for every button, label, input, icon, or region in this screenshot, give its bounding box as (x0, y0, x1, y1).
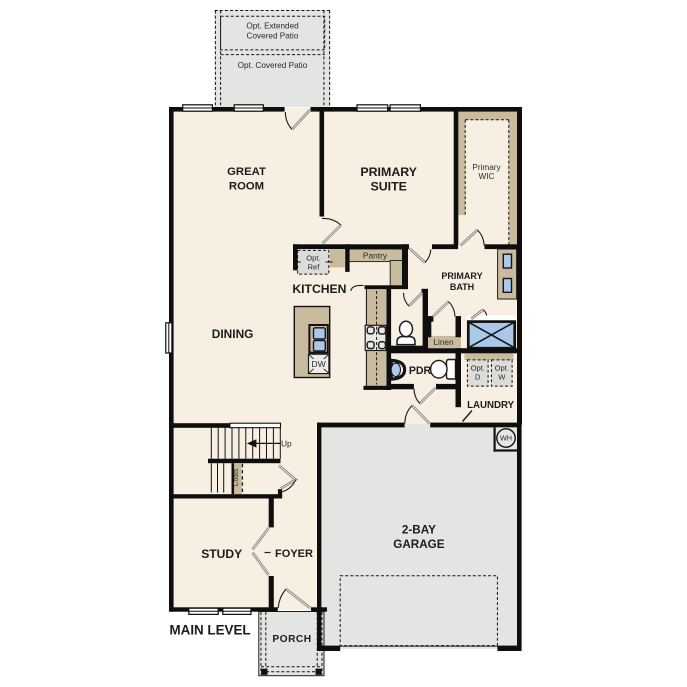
svg-text:GREAT: GREAT (227, 166, 266, 178)
svg-text:Opt.: Opt. (471, 363, 485, 372)
svg-text:Covered Patio: Covered Patio (247, 32, 299, 41)
svg-text:PRIMARY: PRIMARY (441, 271, 482, 281)
svg-text:PORCH: PORCH (272, 634, 311, 645)
svg-text:Coats: Coats (233, 468, 240, 487)
svg-text:DW: DW (311, 359, 326, 369)
svg-text:KITCHEN: KITCHEN (292, 282, 346, 296)
svg-text:SUITE: SUITE (370, 180, 407, 194)
svg-text:STUDY: STUDY (201, 547, 242, 561)
svg-text:Opt. Covered Patio: Opt. Covered Patio (238, 61, 308, 70)
svg-text:GARAGE: GARAGE (393, 538, 445, 551)
svg-text:LAUNDRY: LAUNDRY (467, 400, 515, 411)
svg-text:BATH: BATH (450, 282, 474, 292)
svg-text:Opt. Extended: Opt. Extended (246, 22, 299, 31)
svg-text:WIC: WIC (479, 172, 495, 181)
svg-text:WH: WH (500, 434, 512, 443)
svg-text:2-BAY: 2-BAY (402, 524, 436, 537)
svg-text:Linen: Linen (433, 338, 453, 347)
svg-text:D: D (475, 373, 481, 382)
svg-text:Opt.: Opt. (495, 363, 509, 372)
svg-text:DINING: DINING (212, 327, 254, 341)
svg-text:PRIMARY: PRIMARY (360, 165, 417, 179)
svg-text:Ref: Ref (307, 263, 320, 272)
svg-text:PDR: PDR (409, 365, 432, 377)
svg-text:Up: Up (281, 439, 292, 449)
svg-text:Opt.: Opt. (306, 254, 320, 263)
svg-text:MAIN LEVEL: MAIN LEVEL (170, 623, 251, 638)
svg-text:Primary: Primary (472, 163, 501, 172)
svg-text:ROOM: ROOM (229, 181, 264, 193)
svg-text:Pantry: Pantry (363, 251, 388, 261)
svg-text:W: W (498, 373, 506, 382)
svg-text:FOYER: FOYER (275, 548, 313, 560)
